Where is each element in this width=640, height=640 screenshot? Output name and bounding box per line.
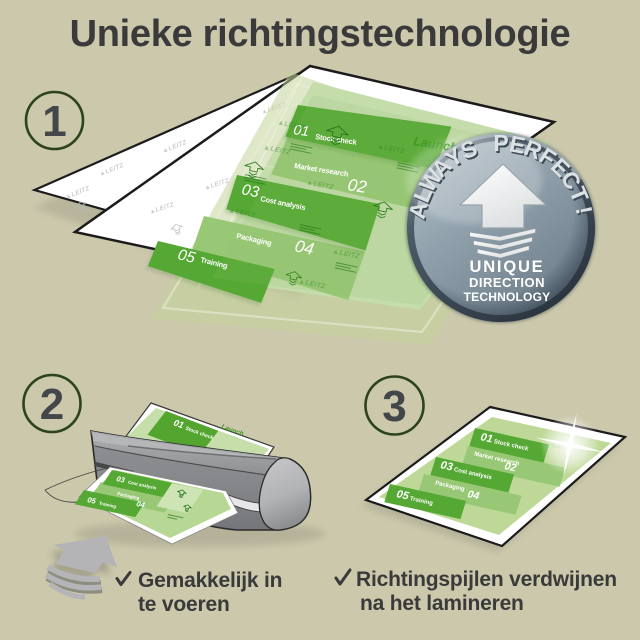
svg-text:04: 04 (293, 236, 316, 259)
svg-text:2: 2 (40, 380, 64, 429)
svg-text:Unieke richtingstechnologie: Unieke richtingstechnologie (70, 13, 571, 55)
svg-text:3: 3 (382, 382, 406, 431)
svg-text:te voeren: te voeren (138, 593, 230, 616)
svg-text:UNIQUE: UNIQUE (470, 258, 545, 276)
svg-text:na het lamineren: na het lamineren (360, 592, 524, 615)
svg-text:TECHNOLOGY: TECHNOLOGY (464, 290, 551, 304)
svg-text:DIRECTION: DIRECTION (469, 275, 545, 290)
svg-text:02: 02 (346, 175, 368, 197)
svg-text:P: P (493, 130, 508, 156)
svg-text:Gemakkelijk in: Gemakkelijk in (138, 569, 282, 592)
svg-text:1: 1 (42, 97, 66, 146)
svg-text:Richtingspijlen verdwijnen: Richtingspijlen verdwijnen (356, 568, 617, 591)
